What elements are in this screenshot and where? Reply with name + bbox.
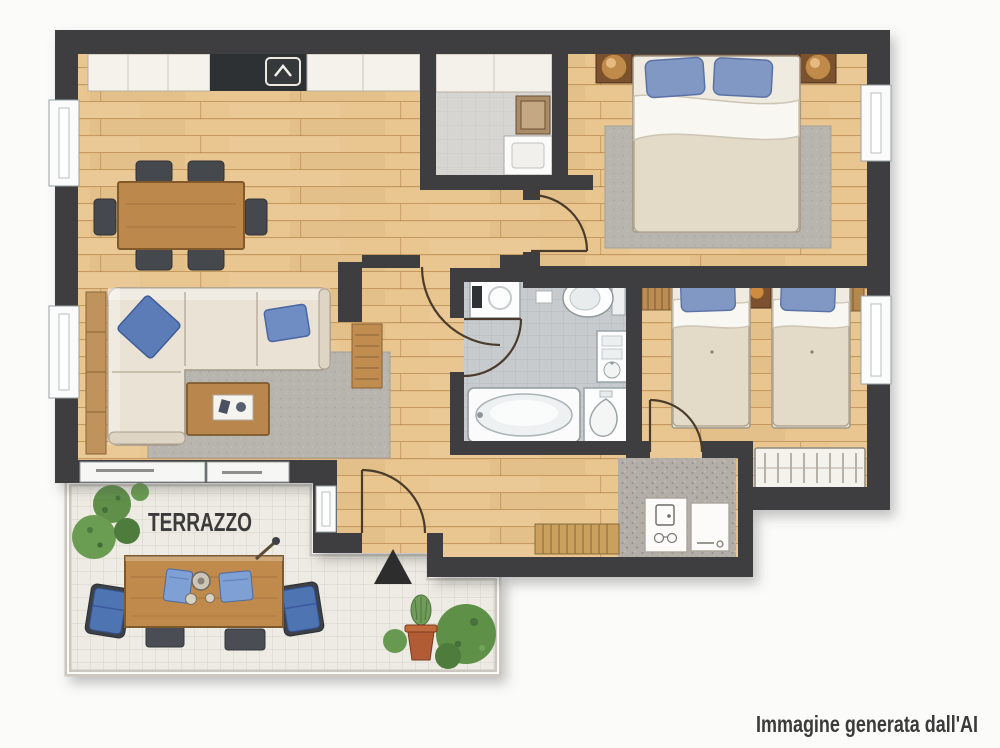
bidet xyxy=(584,388,628,442)
sofa-pillow xyxy=(264,304,310,342)
washing-machine xyxy=(470,278,520,318)
wall-bedrooms-north xyxy=(523,266,890,288)
terrace-label: TERRAZZO xyxy=(148,507,252,537)
wall-master-west-b xyxy=(523,252,540,266)
glass-door-terrace-2 xyxy=(207,462,289,482)
single-bed-right xyxy=(772,278,850,428)
plant-bush xyxy=(131,483,149,501)
wall-bath-east xyxy=(626,268,642,455)
dining-table xyxy=(118,182,244,249)
wall-hall-east xyxy=(738,455,753,577)
plant-pot-rim xyxy=(405,625,437,632)
kitchen-counter-left xyxy=(88,54,210,91)
window-living-left-1 xyxy=(49,100,79,186)
sideboard xyxy=(86,292,106,454)
floorplan-page: TERRAZZO xyxy=(0,0,1000,748)
window-bed2-right xyxy=(861,296,891,384)
kitchen xyxy=(88,54,420,91)
terrace-chair-bottom-left xyxy=(146,626,184,647)
window-master-right xyxy=(861,85,891,161)
console-cabinet xyxy=(691,503,729,551)
wall-bay-south xyxy=(753,487,890,510)
floorplan-canvas: TERRAZZO xyxy=(0,0,1000,748)
shoe-cabinet xyxy=(645,498,687,552)
wall-corridor-b xyxy=(500,255,523,268)
pillow xyxy=(713,58,773,98)
duvet xyxy=(634,128,799,232)
glass-door-terrace-1 xyxy=(80,462,205,482)
wall-laundry-divider xyxy=(552,54,568,187)
wall-entry-step xyxy=(427,533,443,577)
wall-kitchen-divider xyxy=(420,54,436,175)
shelf xyxy=(536,291,552,303)
wall-pillar xyxy=(338,262,362,322)
terrace-armchair-right xyxy=(277,581,324,637)
dining-chair xyxy=(188,248,224,270)
wall-corridor-a xyxy=(362,255,420,268)
pillow xyxy=(645,57,705,98)
window-living-left-2 xyxy=(49,306,79,398)
plant-bush xyxy=(114,518,140,544)
dining-chair xyxy=(136,161,172,183)
tub-faucet xyxy=(477,412,483,418)
dining-chair xyxy=(94,199,116,235)
wall-entry-left xyxy=(313,533,362,553)
tray xyxy=(213,395,253,420)
wall-hall-south xyxy=(443,557,753,577)
terrace-seat-on-table-right xyxy=(219,571,253,603)
ai-caption: Immagine generata dall'AI xyxy=(756,711,978,737)
dining-chair xyxy=(188,161,224,183)
hood-icon-box xyxy=(266,58,300,85)
tv-console xyxy=(352,324,382,388)
sofa-armrest xyxy=(319,289,330,369)
coffee-table xyxy=(187,383,269,435)
wall-top xyxy=(55,30,890,54)
wall-left xyxy=(55,30,78,483)
radiator xyxy=(755,448,865,488)
single-bed-left xyxy=(672,278,750,428)
terrace-table xyxy=(125,556,283,627)
dining-chair xyxy=(136,248,172,270)
plant-bush xyxy=(72,515,116,559)
terrace-chair-bottom-right xyxy=(225,629,265,650)
wall-bath-south xyxy=(450,441,640,455)
wall-bed2-south-b xyxy=(702,441,753,458)
dining-chair xyxy=(245,199,267,235)
window-terrace-side xyxy=(316,486,336,532)
wall-bath-west-a xyxy=(450,268,464,318)
plant-pot xyxy=(408,632,434,660)
plant-bush xyxy=(383,629,407,653)
bathtub xyxy=(468,388,580,442)
sink-cabinet xyxy=(597,331,627,382)
doormat xyxy=(535,524,619,554)
sofa-armrest xyxy=(109,432,185,444)
